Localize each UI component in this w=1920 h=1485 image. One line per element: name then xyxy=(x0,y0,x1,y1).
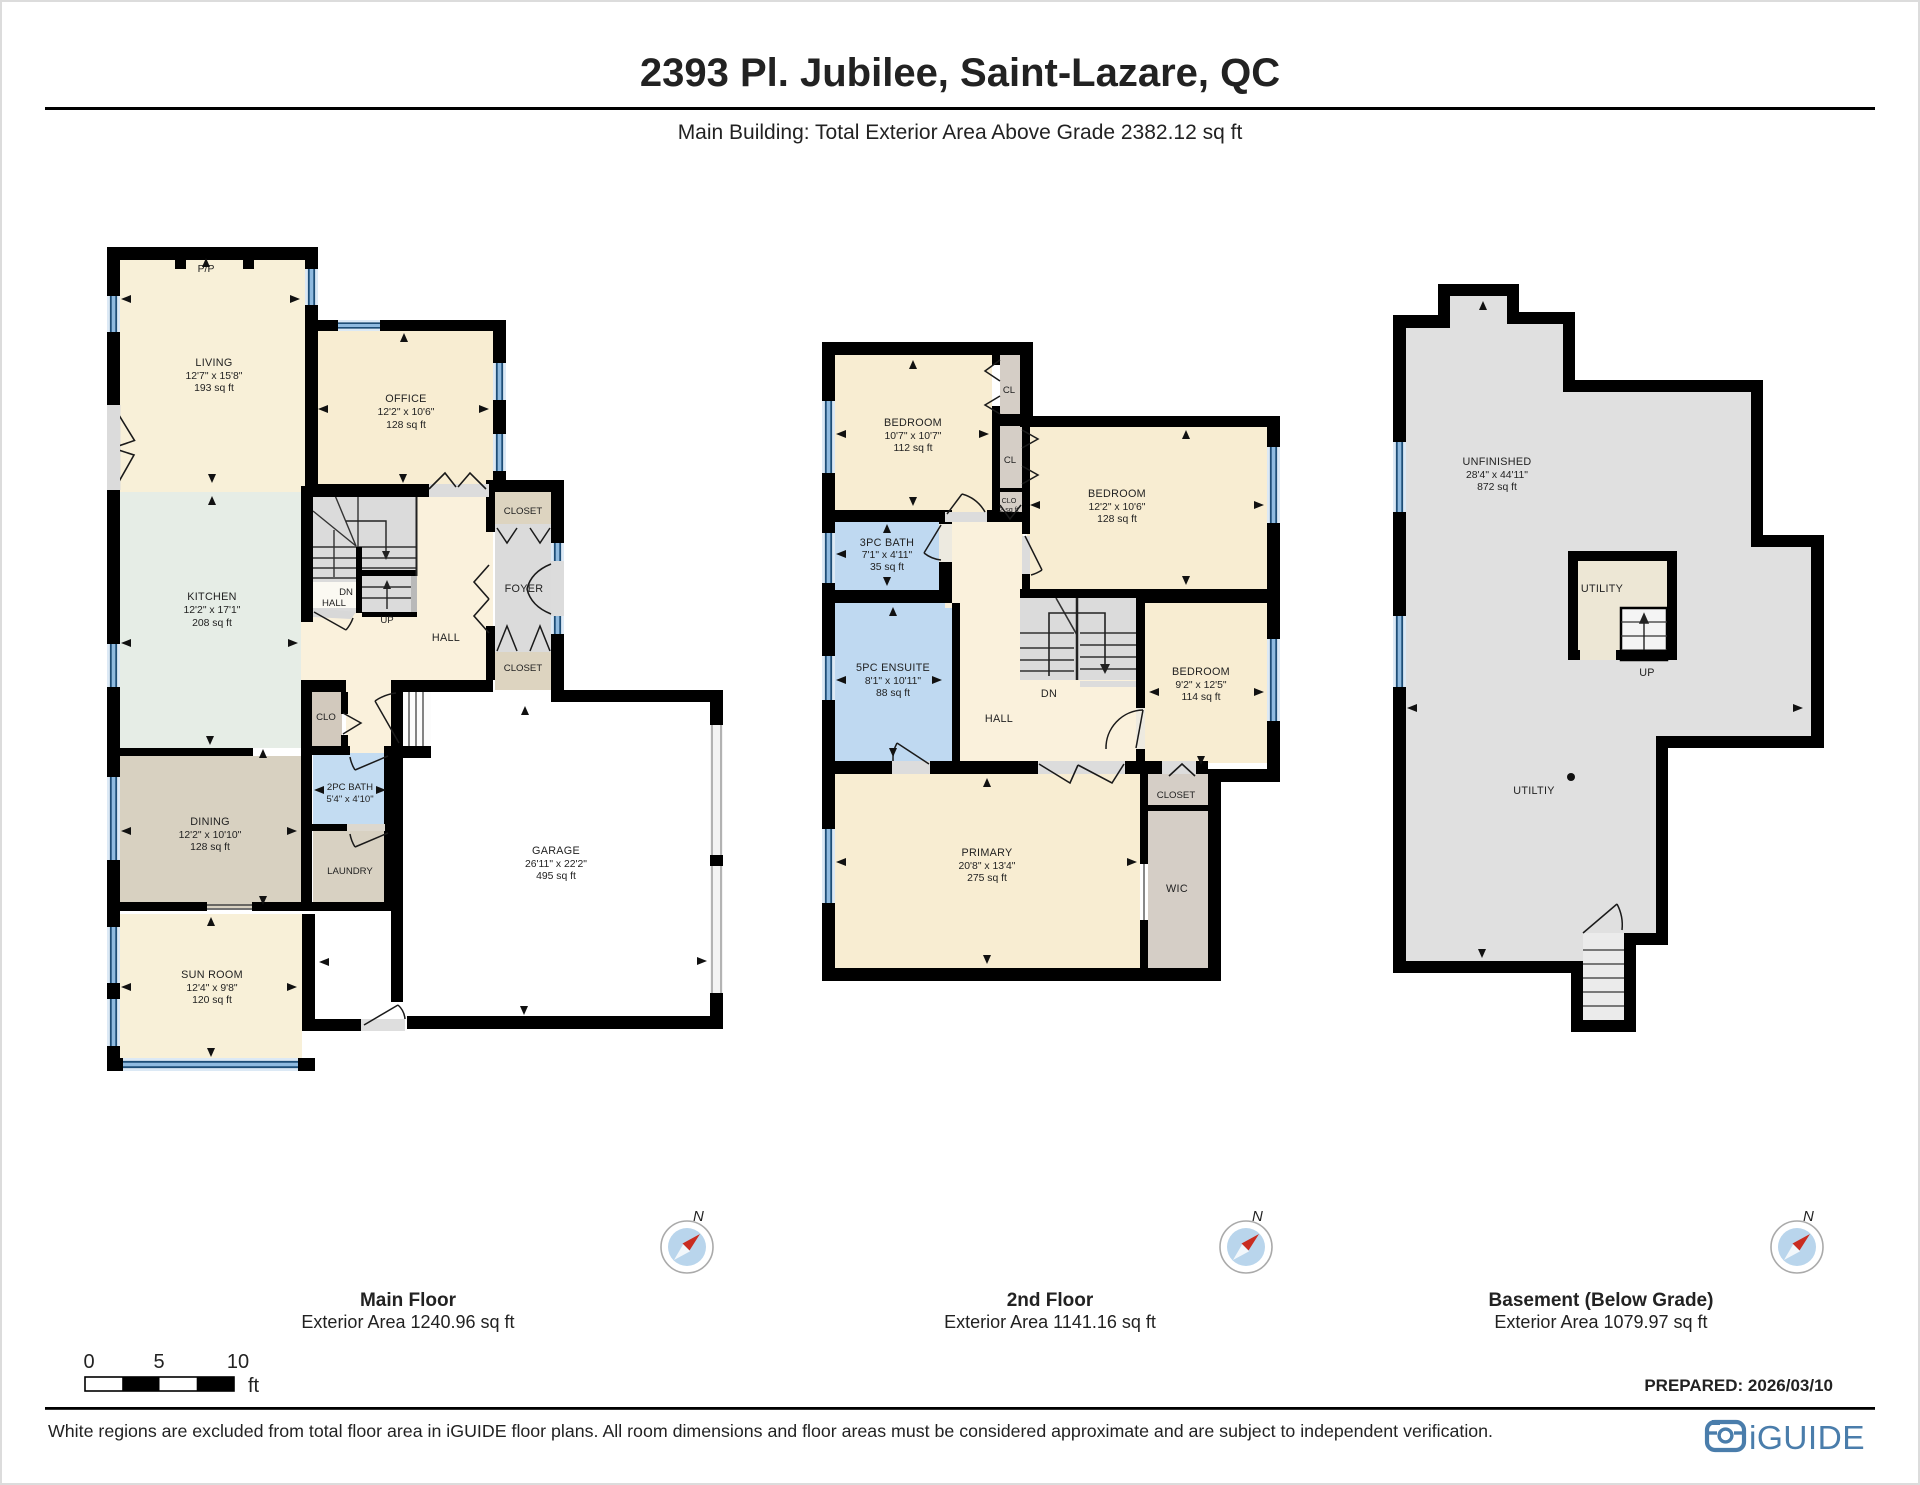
svg-text:128 sq ft: 128 sq ft xyxy=(190,842,230,853)
svg-text:PRIMARY: PRIMARY xyxy=(961,847,1012,859)
svg-text:872 sq ft: 872 sq ft xyxy=(1477,482,1517,493)
svg-text:9'2" x 12'5": 9'2" x 12'5" xyxy=(1175,680,1227,691)
svg-text:N: N xyxy=(693,1208,704,1225)
svg-text:HALL: HALL xyxy=(985,713,1013,725)
svg-text:495 sq ft: 495 sq ft xyxy=(536,871,576,882)
svg-text:275 sq ft: 275 sq ft xyxy=(967,873,1007,884)
svg-text:ft: ft xyxy=(248,1375,260,1397)
svg-text:0: 0 xyxy=(83,1351,94,1373)
svg-text:UP: UP xyxy=(1639,667,1655,679)
svg-text:LIVING: LIVING xyxy=(195,357,232,369)
svg-text:HALL: HALL xyxy=(322,598,347,609)
svg-text:CLOSET: CLOSET xyxy=(504,506,543,517)
svg-text:DN: DN xyxy=(339,587,353,598)
svg-text:5'4" x 4'10": 5'4" x 4'10" xyxy=(326,794,373,805)
svg-text:120 sq ft: 120 sq ft xyxy=(192,995,232,1006)
svg-text:128 sq ft: 128 sq ft xyxy=(386,420,426,431)
svg-text:OFFICE: OFFICE xyxy=(385,393,426,405)
svg-text:N: N xyxy=(1252,1208,1263,1225)
svg-text:DN: DN xyxy=(1041,688,1057,700)
svg-text:BEDROOM: BEDROOM xyxy=(884,417,942,429)
svg-text:128 sq ft: 128 sq ft xyxy=(1097,514,1137,525)
svg-text:112 sq ft: 112 sq ft xyxy=(893,443,932,454)
svg-text:26'11" x 22'2": 26'11" x 22'2" xyxy=(525,859,587,870)
svg-text:DINING: DINING xyxy=(190,816,230,828)
svg-text:CLO: CLO xyxy=(316,712,336,723)
svg-text:5: 5 xyxy=(153,1351,164,1373)
svg-text:8'1" x 10'11": 8'1" x 10'11" xyxy=(865,676,922,687)
svg-text:KITCHEN: KITCHEN xyxy=(187,591,237,603)
svg-text:88 sq ft: 88 sq ft xyxy=(876,688,910,699)
svg-text:WIC: WIC xyxy=(1166,883,1188,895)
svg-text:35 sq ft: 35 sq ft xyxy=(870,562,904,573)
svg-text:BEDROOM: BEDROOM xyxy=(1172,666,1230,678)
svg-text:10'7" x 10'7": 10'7" x 10'7" xyxy=(885,431,942,442)
svg-text:7'1" x 4'11": 7'1" x 4'11" xyxy=(862,550,913,561)
svg-text:2nd Floor: 2nd Floor xyxy=(1007,1290,1094,1311)
svg-text:193 sq ft: 193 sq ft xyxy=(194,383,234,394)
svg-text:2PC BATH: 2PC BATH xyxy=(327,782,373,793)
svg-text:114 sq ft: 114 sq ft xyxy=(1181,692,1220,703)
svg-text:2 sq ft: 2 sq ft xyxy=(999,505,1019,514)
svg-text:LAUNDRY: LAUNDRY xyxy=(327,866,373,877)
svg-text:Main Building: Total Exterior: Main Building: Total Exterior Area Above… xyxy=(678,121,1243,144)
svg-text:2393 Pl. Jubilee, Saint-Lazare: 2393 Pl. Jubilee, Saint-Lazare, QC xyxy=(640,51,1280,95)
svg-text:UP: UP xyxy=(380,615,393,626)
svg-text:Basement (Below Grade): Basement (Below Grade) xyxy=(1489,1290,1714,1311)
svg-text:CLOSET: CLOSET xyxy=(1157,790,1196,801)
svg-text:10: 10 xyxy=(227,1351,249,1373)
svg-text:UNFINISHED: UNFINISHED xyxy=(1463,456,1532,468)
svg-text:Exterior Area 1240.96 sq ft: Exterior Area 1240.96 sq ft xyxy=(301,1312,514,1332)
svg-text:UTILTIY: UTILTIY xyxy=(1513,785,1555,797)
svg-text:PREPARED: 2026/03/10: PREPARED: 2026/03/10 xyxy=(1644,1376,1833,1395)
svg-text:CLO: CLO xyxy=(1002,496,1017,505)
svg-text:12'4" x 9'8": 12'4" x 9'8" xyxy=(186,983,238,994)
svg-text:UTILITY: UTILITY xyxy=(1581,583,1623,595)
svg-text:12'2" x 10'10": 12'2" x 10'10" xyxy=(179,830,242,841)
svg-text:White regions are excluded fro: White regions are excluded from total fl… xyxy=(48,1421,1493,1441)
svg-text:12'2" x 10'6": 12'2" x 10'6" xyxy=(378,407,435,418)
svg-text:208 sq ft: 208 sq ft xyxy=(192,618,232,629)
svg-text:5PC ENSUITE: 5PC ENSUITE xyxy=(856,662,930,674)
svg-text:12'2" x 10'6": 12'2" x 10'6" xyxy=(1089,502,1146,513)
svg-text:CL: CL xyxy=(1004,455,1017,466)
svg-text:12'7" x 15'8": 12'7" x 15'8" xyxy=(186,371,243,382)
svg-text:Exterior Area 1079.97 sq ft: Exterior Area 1079.97 sq ft xyxy=(1494,1312,1707,1332)
svg-text:FOYER: FOYER xyxy=(505,583,544,595)
svg-text:12'2" x 17'1": 12'2" x 17'1" xyxy=(184,605,241,616)
svg-text:Main Floor: Main Floor xyxy=(360,1290,457,1311)
svg-text:3PC BATH: 3PC BATH xyxy=(860,537,914,549)
svg-text:BEDROOM: BEDROOM xyxy=(1088,488,1146,500)
svg-text:N: N xyxy=(1803,1208,1814,1225)
svg-text:CLOSET: CLOSET xyxy=(504,663,543,674)
svg-text:iGUIDE: iGUIDE xyxy=(1749,1420,1865,1457)
svg-text:20'8" x 13'4": 20'8" x 13'4" xyxy=(959,861,1016,872)
svg-text:SUN ROOM: SUN ROOM xyxy=(181,969,243,981)
svg-text:GARAGE: GARAGE xyxy=(532,845,580,857)
svg-text:CL: CL xyxy=(1003,385,1016,396)
svg-text:HALL: HALL xyxy=(432,632,460,644)
svg-text:Exterior Area 1141.16 sq ft: Exterior Area 1141.16 sq ft xyxy=(944,1312,1156,1332)
svg-text:28'4" x 44'11": 28'4" x 44'11" xyxy=(1466,470,1528,481)
